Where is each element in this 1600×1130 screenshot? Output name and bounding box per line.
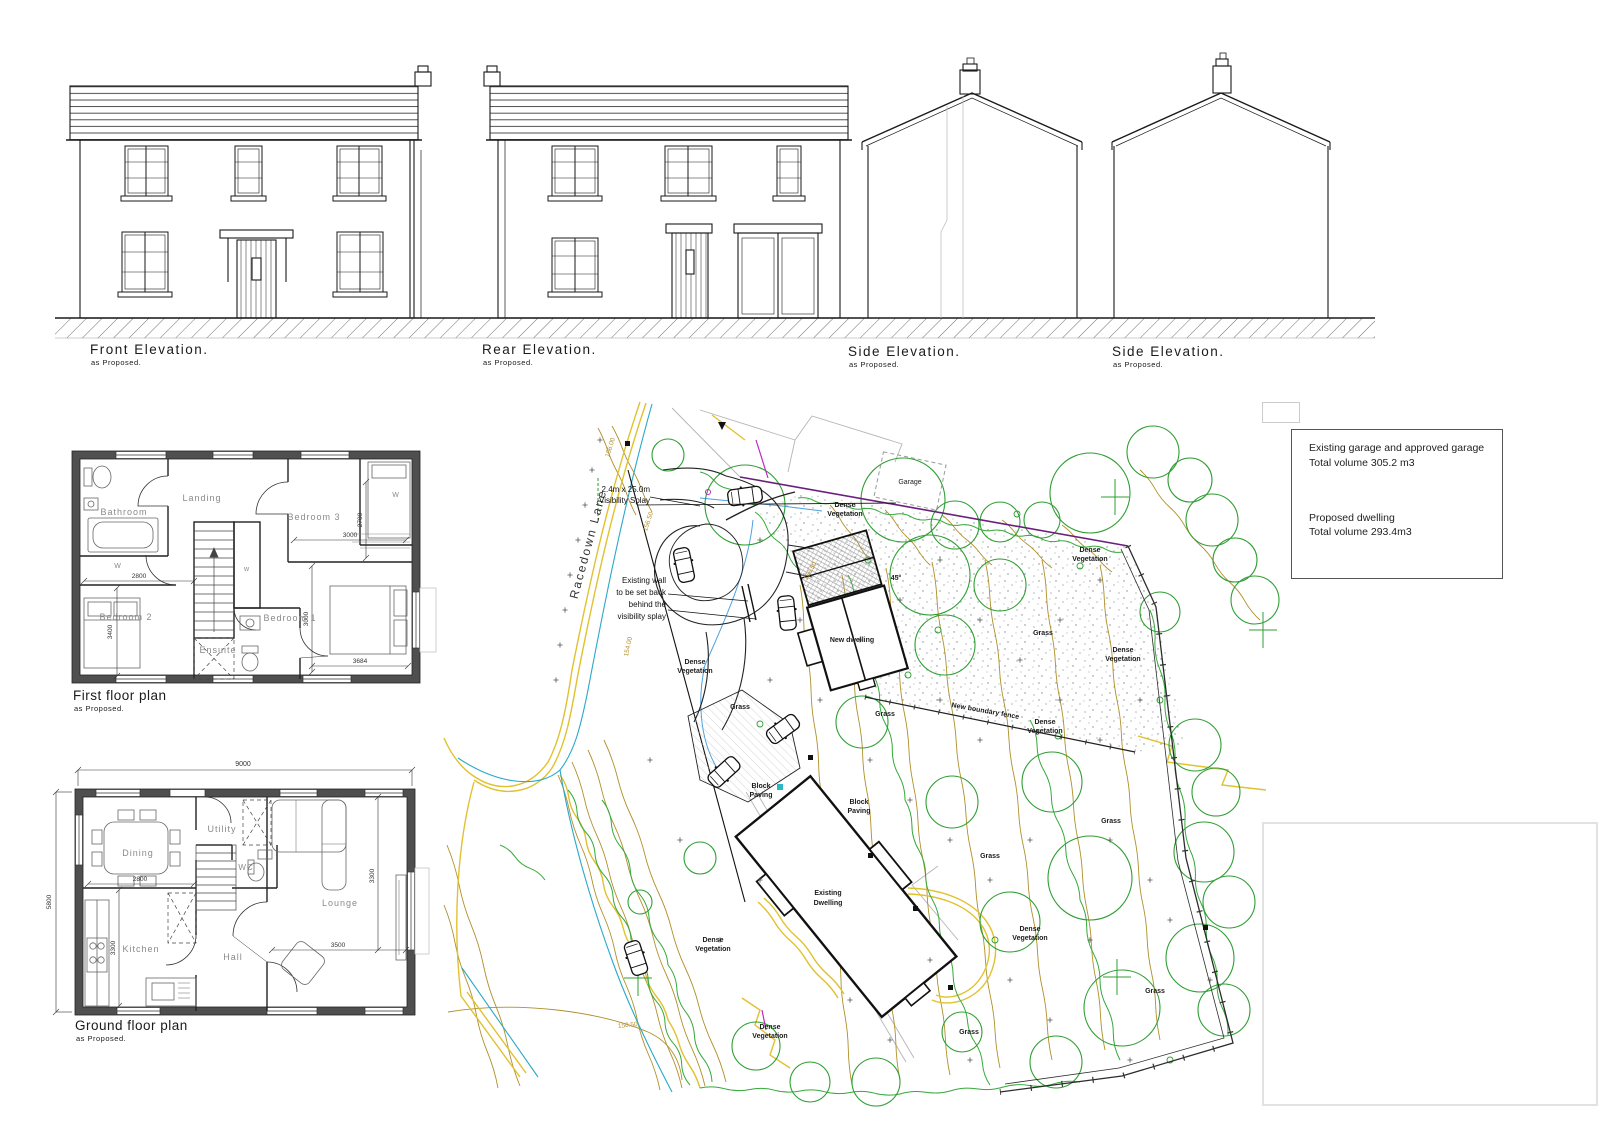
svg-text:Dense: Dense bbox=[1079, 547, 1100, 554]
svg-text:Dense: Dense bbox=[1019, 926, 1040, 933]
svg-text:154.00: 154.00 bbox=[623, 636, 634, 657]
svg-text:Dense: Dense bbox=[759, 1024, 780, 1031]
dim-overall-depth: 5800 bbox=[46, 894, 53, 909]
dim-bedroom3-width: 3000 bbox=[343, 532, 358, 539]
svg-text:behind the: behind the bbox=[629, 600, 667, 609]
rear-elevation-subtitle: as Proposed. bbox=[483, 358, 533, 367]
dim-bedroom2-depth: 3400 bbox=[107, 624, 114, 639]
dim-overall-width: 9000 bbox=[235, 761, 251, 768]
room-bathroom: Bathroom bbox=[100, 507, 147, 517]
small-reference-box bbox=[1262, 402, 1300, 423]
dim-bedroom1-width: 3684 bbox=[353, 658, 368, 665]
svg-text:Vegetation: Vegetation bbox=[827, 511, 862, 518]
room-lounge: Lounge bbox=[322, 898, 358, 908]
svg-text:Dense: Dense bbox=[684, 659, 705, 666]
svg-text:Block: Block bbox=[751, 783, 770, 790]
svg-text:Dense: Dense bbox=[1112, 647, 1133, 654]
svg-text:visibility splay: visibility splay bbox=[618, 612, 666, 621]
front-elevation-drawing bbox=[66, 66, 431, 318]
dim-lounge-width: 3500 bbox=[331, 942, 346, 949]
note-garage-volume: Total volume 305.2 m3 bbox=[1309, 457, 1415, 469]
room-landing: Landing bbox=[182, 493, 221, 503]
room-wc: WC bbox=[238, 863, 253, 872]
svg-text:Vegetation: Vegetation bbox=[1027, 728, 1062, 735]
svg-text:Vegetation: Vegetation bbox=[1105, 656, 1140, 663]
existing-dwelling-label: Existing bbox=[814, 890, 841, 897]
svg-text:Visibility Splay: Visibility Splay bbox=[599, 496, 650, 505]
ground-floor-plan-subtitle: as Proposed. bbox=[76, 1034, 126, 1043]
svg-text:Vegetation: Vegetation bbox=[677, 668, 712, 675]
note-dwelling-title: Proposed dwelling bbox=[1309, 512, 1395, 524]
volume-notes-box: Existing garage and approved garage Tota… bbox=[1291, 429, 1503, 579]
ground-line bbox=[55, 318, 1375, 338]
dim-kitchen-depth: 3300 bbox=[110, 940, 117, 955]
existing-dwelling-label: Dwelling bbox=[814, 900, 843, 907]
svg-text:156.00: 156.00 bbox=[604, 437, 617, 458]
rear-door bbox=[666, 224, 712, 318]
first-floor-plan-subtitle: as Proposed. bbox=[74, 704, 124, 713]
side-elevation-2-drawing bbox=[1112, 53, 1330, 318]
side-elevation-1-drawing bbox=[862, 58, 1082, 318]
front-elevation-subtitle: as Proposed. bbox=[91, 358, 141, 367]
existing-wall-note: Existing wall bbox=[622, 576, 666, 585]
water-lines bbox=[458, 404, 672, 1092]
side-elevation-1-subtitle: as Proposed. bbox=[849, 360, 899, 369]
svg-text:Dense: Dense bbox=[1034, 719, 1055, 726]
ground-floor-plan-drawing: 9000 5800 2800 3300 3500 3300 Dining Uti… bbox=[46, 761, 429, 1015]
svg-text:Grass: Grass bbox=[980, 853, 1000, 860]
svg-text:Grass: Grass bbox=[875, 711, 895, 718]
svg-text:Dense: Dense bbox=[702, 937, 723, 944]
first-floor-plan-title: First floor plan bbox=[73, 688, 167, 703]
first-floor-plan-drawing: 2800 3400 3000 2700 3000 3684 Bathroom L… bbox=[72, 451, 436, 683]
front-door bbox=[220, 230, 293, 318]
svg-text:Grass: Grass bbox=[1101, 818, 1121, 825]
svg-text:Paving: Paving bbox=[848, 808, 871, 815]
wardrobe-label: W bbox=[114, 563, 122, 570]
room-ensuite: Ensuite bbox=[199, 645, 236, 655]
note-dwelling-volume: Total volume 293.4m3 bbox=[1309, 526, 1412, 538]
room-bedroom1: Bedroom 1 bbox=[263, 613, 316, 623]
svg-text:Vegetation: Vegetation bbox=[1072, 556, 1107, 563]
site-plan-drawing: Racedown Lane Garage New dwelling Existi… bbox=[444, 402, 1279, 1106]
side-elevation-2-title: Side Elevation. bbox=[1112, 344, 1225, 359]
dim-bedroom2-width: 2800 bbox=[132, 573, 147, 580]
front-elevation-title: Front Elevation. bbox=[90, 342, 209, 357]
dim-bedroom3-depth: 2700 bbox=[357, 512, 364, 527]
svg-text:150.50: 150.50 bbox=[618, 1021, 639, 1030]
rear-elevation-title: Rear Elevation. bbox=[482, 342, 597, 357]
svg-text:Block: Block bbox=[849, 799, 868, 806]
dim-lounge-depth: 3300 bbox=[369, 868, 376, 883]
svg-text:Vegetation: Vegetation bbox=[695, 946, 730, 953]
new-dwelling-label: New dwelling bbox=[830, 637, 874, 644]
wardrobe-label: w bbox=[243, 566, 250, 573]
room-bedroom2: Bedroom 2 bbox=[99, 612, 152, 622]
svg-text:Vegetation: Vegetation bbox=[1012, 935, 1047, 942]
dim-kitchen-width: 2800 bbox=[133, 876, 148, 883]
svg-text:Vegetation: Vegetation bbox=[752, 1033, 787, 1040]
side-elevation-2-subtitle: as Proposed. bbox=[1113, 360, 1163, 369]
svg-text:to be set back: to be set back bbox=[616, 588, 667, 597]
svg-text:Grass: Grass bbox=[1145, 988, 1165, 995]
svg-text:Paving: Paving bbox=[750, 792, 773, 799]
svg-text:Grass: Grass bbox=[1033, 630, 1053, 637]
room-kitchen: Kitchen bbox=[122, 944, 159, 954]
svg-text:Grass: Grass bbox=[959, 1029, 979, 1036]
rear-elevation-drawing bbox=[484, 66, 852, 318]
room-bedroom3: Bedroom 3 bbox=[287, 512, 340, 522]
side-elevation-1-title: Side Elevation. bbox=[848, 344, 961, 359]
svg-text:Grass: Grass bbox=[730, 704, 750, 711]
room-utility: Utility bbox=[208, 824, 237, 834]
garage-label: Garage bbox=[898, 479, 921, 486]
note-garage-title: Existing garage and approved garage bbox=[1309, 442, 1484, 454]
elevations bbox=[55, 53, 1375, 338]
room-dining: Dining bbox=[122, 848, 154, 858]
angle-label: 45° bbox=[891, 574, 902, 582]
ground-floor-plan-title: Ground floor plan bbox=[75, 1018, 188, 1033]
wardrobe-label: W bbox=[392, 492, 400, 499]
drawing-sheet: 2800 3400 3000 2700 3000 3684 Bathroom L… bbox=[0, 0, 1600, 1130]
svg-text:156.50: 156.50 bbox=[642, 511, 655, 532]
patio-doors bbox=[734, 224, 822, 318]
svg-text:Dense: Dense bbox=[834, 502, 855, 509]
title-block-placeholder bbox=[1262, 822, 1598, 1106]
visibility-splay-note: 2.4m x 25.0m bbox=[602, 485, 651, 494]
room-hall: Hall bbox=[223, 952, 243, 962]
